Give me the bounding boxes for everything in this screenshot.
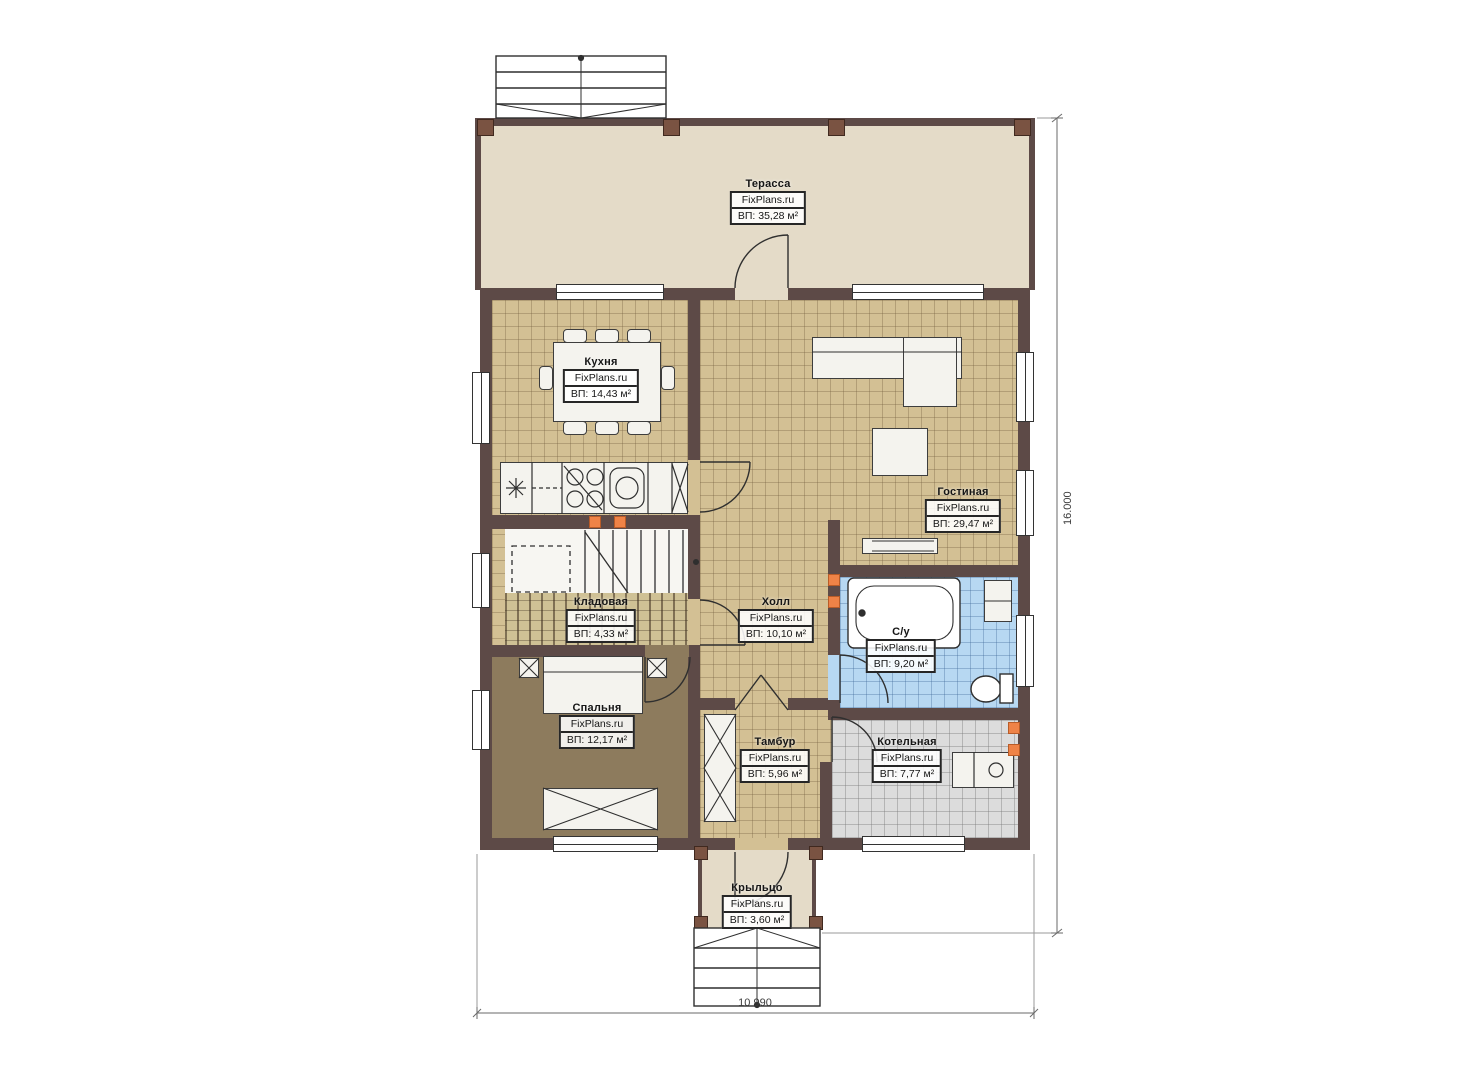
vent-mark [828, 596, 840, 608]
bedroom-door-gap [645, 645, 689, 657]
room-label-bathroom: С/у FixPlans.ru ВП: 9,20 м² [866, 626, 936, 673]
bedroom-window-left [472, 690, 490, 750]
porch-post [694, 846, 708, 860]
nightstand [519, 658, 539, 678]
kitchen-hall-wall [688, 300, 700, 460]
coffee-table [872, 428, 928, 476]
room-area: ВП: 12,17 м² [561, 733, 633, 747]
watermark: FixPlans.ru [568, 611, 634, 627]
room-label-kitchen: Кухня FixPlans.ru ВП: 14,43 м² [563, 356, 639, 403]
watermark: FixPlans.ru [732, 193, 804, 209]
room-name: Крыльцо [722, 882, 792, 894]
room-area: ВП: 14,43 м² [565, 387, 637, 401]
terrace-post [477, 119, 494, 136]
room-name: С/у [866, 626, 936, 638]
room-area: ВП: 35,28 м² [732, 209, 804, 223]
living-window-top [852, 284, 984, 300]
kitchen-counter [500, 462, 688, 514]
room-name: Кладовая [566, 596, 636, 608]
watermark: FixPlans.ru [927, 501, 999, 517]
room-area: ВП: 10,10 м² [740, 627, 812, 641]
room-label-tambour: Тамбур FixPlans.ru ВП: 5,96 м² [740, 736, 810, 783]
watermark: FixPlans.ru [561, 717, 633, 733]
room-area: ВП: 5,96 м² [742, 767, 808, 781]
wardrobe [543, 788, 658, 830]
watermark: FixPlans.ru [874, 751, 940, 767]
tambour-top-wall-left [700, 698, 735, 710]
radiator [862, 538, 938, 554]
porch-post [809, 846, 823, 860]
hall-bathroom-wall [828, 520, 840, 655]
staircase-area [505, 528, 700, 595]
bathroom-top-wall [840, 565, 1018, 577]
boiler-unit [952, 752, 1014, 788]
room-label-storage: Кладовая FixPlans.ru ВП: 4,33 м² [566, 596, 636, 643]
tambour-wardrobe [704, 714, 736, 822]
tambour-boiler-wall [820, 762, 832, 838]
room-label-porch: Крыльцо FixPlans.ru ВП: 3,60 м² [722, 882, 792, 929]
room-label-terrace: Терасса FixPlans.ru ВП: 35,28 м² [730, 178, 806, 225]
room-name: Холл [738, 596, 814, 608]
chair [539, 366, 553, 390]
stairs-window-left [472, 553, 490, 608]
room-name: Терасса [730, 178, 806, 190]
room-area: ВП: 29,47 м² [927, 517, 999, 531]
vent-mark [1008, 744, 1020, 756]
terrace-post [663, 119, 680, 136]
kitchen-window-left [472, 372, 490, 444]
vent-mark [828, 574, 840, 586]
bathroom-window [1016, 615, 1034, 687]
nightstand [647, 658, 667, 678]
room-area: ВП: 7,77 м² [874, 767, 940, 781]
entry-door-gap [735, 288, 788, 300]
chair [627, 421, 651, 435]
room-area: ВП: 3,60 м² [724, 913, 790, 927]
room-area: ВП: 4,33 м² [568, 627, 634, 641]
vent-mark [1008, 722, 1020, 734]
storage-door-gap [688, 599, 700, 645]
room-name: Гостиная [925, 486, 1001, 498]
bedroom-right-wall [688, 645, 700, 838]
chair [563, 329, 587, 343]
terrace-post [828, 119, 845, 136]
room-area: ВП: 9,20 м² [868, 657, 934, 671]
bathroom-boiler-wall [828, 708, 1018, 720]
sofa-chaise [903, 337, 957, 407]
terrace-wall-left [475, 118, 481, 290]
tambour-top-wall-right [788, 698, 828, 710]
watermark: FixPlans.ru [565, 371, 637, 387]
boiler-window-bottom [862, 836, 965, 852]
room-name: Тамбур [740, 736, 810, 748]
chair [661, 366, 675, 390]
room-name: Котельная [872, 736, 942, 748]
living-window-right-2 [1016, 470, 1034, 536]
room-label-boiler: Котельная FixPlans.ru ВП: 7,77 м² [872, 736, 942, 783]
kitchen-window [556, 284, 664, 300]
terrace-wall-right [1029, 118, 1035, 290]
bathroom-sink [984, 580, 1012, 622]
watermark: FixPlans.ru [868, 641, 934, 657]
kitchen-door-gap [688, 460, 700, 515]
terrace-wall-top [475, 118, 1035, 126]
room-label-living: Гостиная FixPlans.ru ВП: 29,47 м² [925, 486, 1001, 533]
watermark: FixPlans.ru [724, 897, 790, 913]
vent-mark [614, 516, 626, 528]
living-window-right-1 [1016, 352, 1034, 422]
porch-door-gap [735, 838, 788, 850]
porch-post [694, 916, 708, 930]
watermark: FixPlans.ru [740, 611, 812, 627]
watermark: FixPlans.ru [742, 751, 808, 767]
room-label-hall: Холл FixPlans.ru ВП: 10,10 м² [738, 596, 814, 643]
terrace-stairs [496, 56, 666, 118]
vent-mark [589, 516, 601, 528]
stairs-hall-wall [688, 529, 700, 599]
room-name: Спальня [559, 702, 635, 714]
porch-stairs [694, 928, 820, 1007]
chair [595, 329, 619, 343]
bedroom-window-bottom [553, 836, 658, 852]
chair [563, 421, 587, 435]
dimension-width: 10 990 [738, 997, 772, 1009]
porch-post [809, 916, 823, 930]
bathroom-door-gap [828, 655, 840, 700]
chair [595, 421, 619, 435]
room-label-bedroom: Спальня FixPlans.ru ВП: 12,17 м² [559, 702, 635, 749]
terrace-post [1014, 119, 1031, 136]
room-name: Кухня [563, 356, 639, 368]
dimension-height: 16.000 [1062, 491, 1074, 525]
chair [627, 329, 651, 343]
floor-plan-canvas: Терасса FixPlans.ru ВП: 35,28 м² Кухня F… [0, 0, 1473, 1080]
